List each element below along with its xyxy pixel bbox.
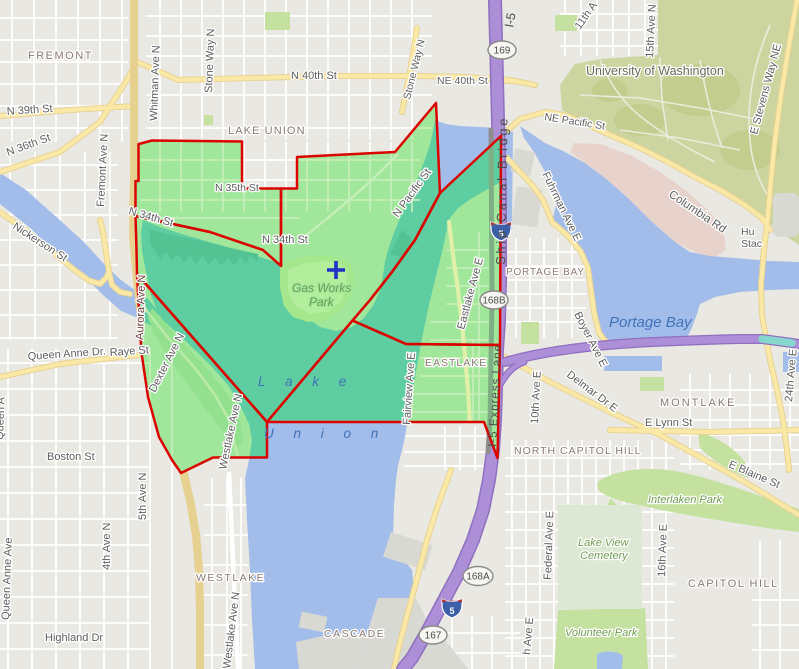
- svg-text:16th Ave E: 16th Ave E: [656, 524, 670, 577]
- svg-text:Federal Ave E: Federal Ave E: [542, 511, 556, 580]
- svg-text:L a k e: L a k e: [258, 374, 354, 389]
- svg-text:NORTH CAPITOL HILL: NORTH CAPITOL HILL: [514, 445, 642, 457]
- svg-text:Gas Works: Gas Works: [292, 281, 351, 295]
- svg-text:E Lynn St: E Lynn St: [645, 417, 692, 429]
- svg-text:FREMONT: FREMONT: [28, 50, 93, 62]
- svg-text:N 40th St: N 40th St: [291, 70, 337, 82]
- svg-text:Hu: Hu: [741, 226, 755, 238]
- svg-text:Park: Park: [309, 295, 335, 309]
- svg-text:Lake View: Lake View: [578, 537, 630, 549]
- svg-text:Stac: Stac: [741, 238, 762, 250]
- svg-text:N 34th St: N 34th St: [262, 234, 308, 246]
- svg-text:Cemetery: Cemetery: [580, 550, 629, 562]
- svg-text:University of Washington: University of Washington: [586, 64, 724, 78]
- svg-text:CAPITOL HILL: CAPITOL HILL: [688, 578, 779, 590]
- svg-text:I-5: I-5: [502, 12, 518, 29]
- svg-text:Aurora Ave N: Aurora Ave N: [134, 274, 148, 340]
- svg-text:U n i o n: U n i o n: [264, 426, 386, 441]
- svg-text:167: 167: [425, 631, 442, 642]
- svg-text:NE 40th St: NE 40th St: [437, 75, 488, 87]
- svg-text:Ship Canal Bridge: Ship Canal Bridge: [493, 116, 511, 265]
- svg-text:WESTLAKE: WESTLAKE: [196, 572, 265, 584]
- svg-text:168A: 168A: [466, 572, 490, 583]
- svg-text:168B: 168B: [482, 296, 506, 307]
- svg-text:PORTAGE BAY: PORTAGE BAY: [506, 267, 585, 278]
- svg-text:Boston St: Boston St: [47, 451, 95, 463]
- svg-text:Stone Way N: Stone Way N: [203, 28, 217, 93]
- svg-text:EASTLAKE: EASTLAKE: [425, 357, 487, 369]
- svg-text:4th Ave N: 4th Ave N: [101, 522, 113, 570]
- svg-text:Highland Dr: Highland Dr: [45, 632, 103, 644]
- svg-text:Interlaken Park: Interlaken Park: [648, 494, 722, 506]
- svg-text:169: 169: [494, 46, 511, 57]
- svg-text:CASCADE: CASCADE: [324, 628, 385, 640]
- svg-text:LAKE UNION: LAKE UNION: [228, 125, 306, 137]
- svg-text:Portage Bay: Portage Bay: [609, 314, 693, 331]
- svg-text:Volunteer Park: Volunteer Park: [565, 627, 638, 639]
- svg-text:5th Ave N: 5th Ave N: [137, 472, 149, 520]
- svg-text:MONTLAKE: MONTLAKE: [660, 397, 737, 409]
- svg-text:N 35th St: N 35th St: [215, 182, 259, 194]
